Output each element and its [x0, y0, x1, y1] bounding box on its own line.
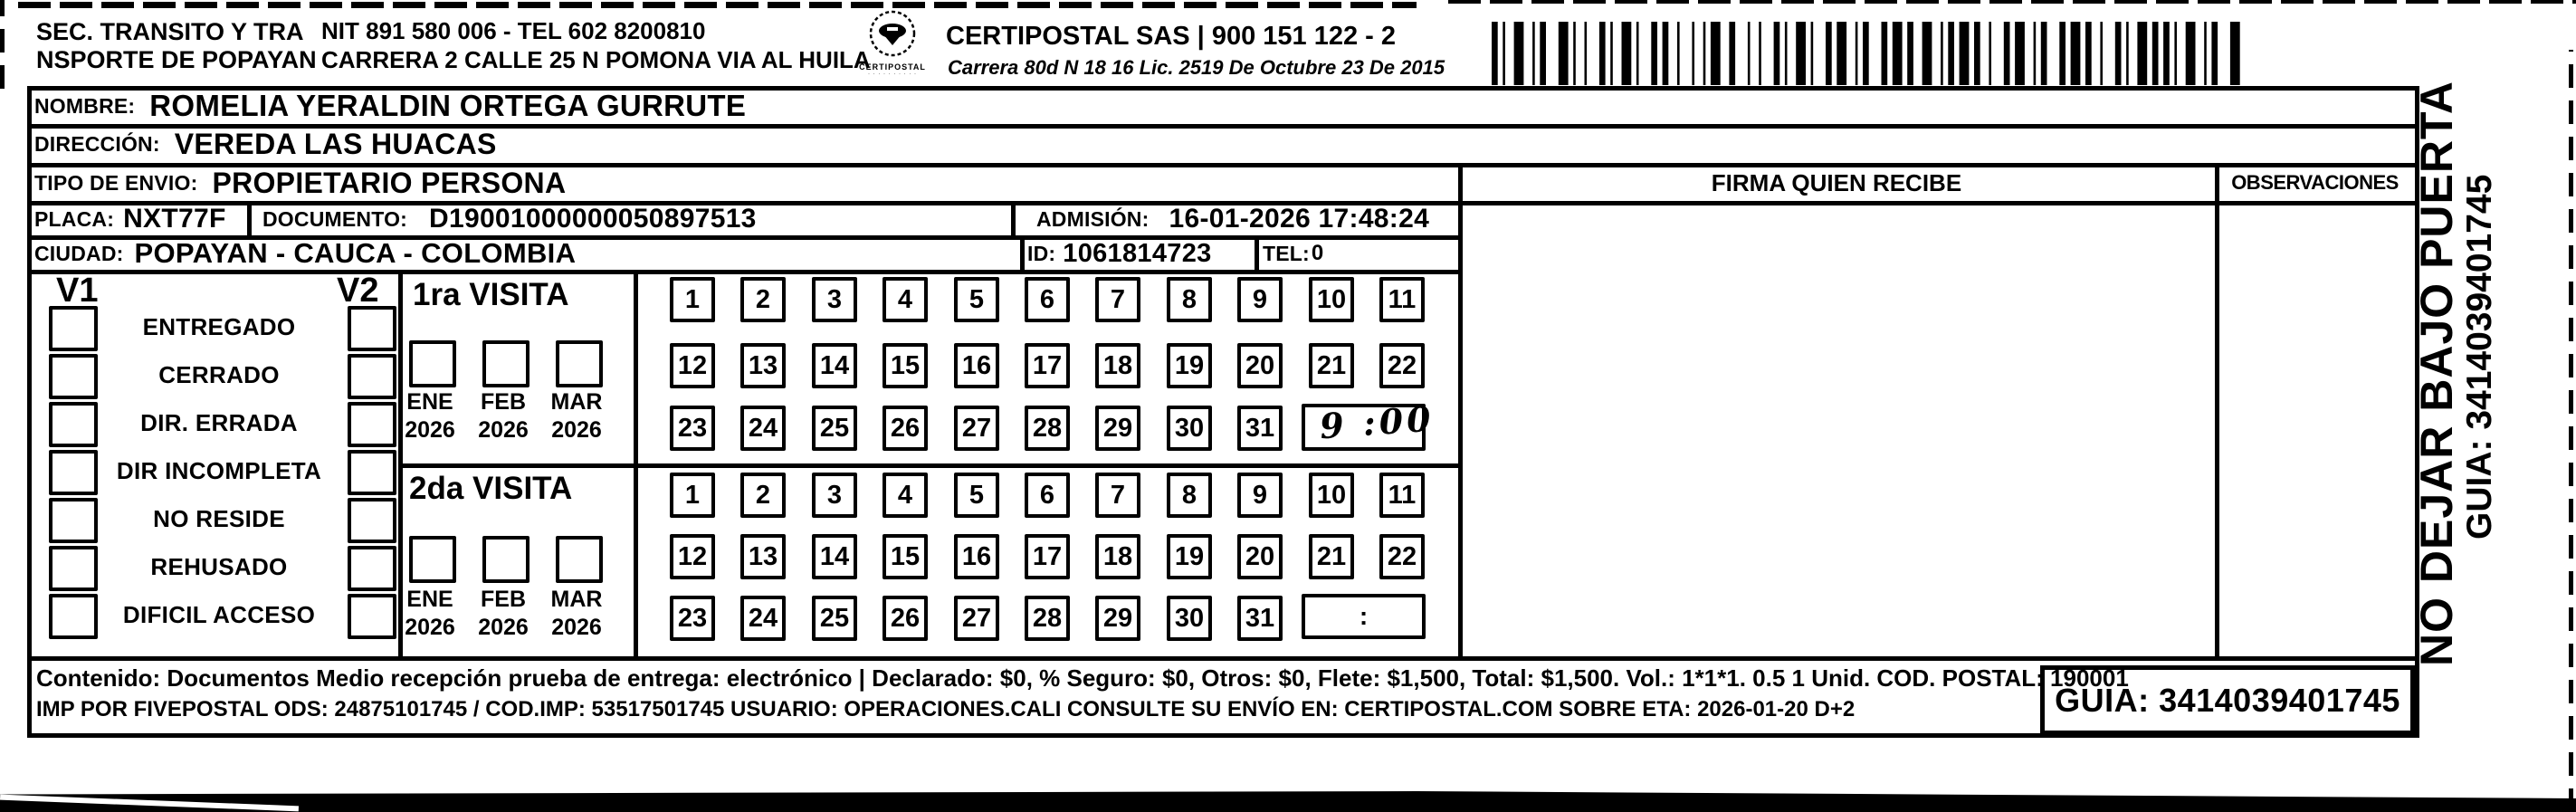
visit1-day-24[interactable]: 24 — [740, 406, 786, 451]
visit2-day-16[interactable]: 16 — [954, 534, 999, 579]
visit1-day-13[interactable]: 13 — [740, 343, 786, 388]
visit2-day-23[interactable]: 23 — [670, 596, 715, 641]
visit1-day-15[interactable]: 15 — [883, 343, 928, 388]
v1-checkbox-dificil-acceso[interactable] — [49, 594, 98, 639]
visit1-year-label: 2026 — [545, 417, 608, 444]
visit1-day-22[interactable]: 22 — [1379, 343, 1425, 388]
visit1-day-12[interactable]: 12 — [670, 343, 715, 388]
field-documento: DOCUMENTO: D19001000000050897513 — [262, 203, 757, 235]
visit1-day-31[interactable]: 31 — [1237, 406, 1283, 451]
admision-label: ADMISIÓN: — [1036, 207, 1149, 232]
visit2-day-31[interactable]: 31 — [1237, 596, 1283, 641]
admision-value: 16-01-2026 17:48:24 — [1169, 204, 1429, 234]
observaciones-header: OBSERVACIONES — [2215, 165, 2415, 201]
sender-contact: NIT 891 580 006 - TEL 602 8200810 CARRER… — [321, 16, 871, 74]
visit1-month-label: ENE — [398, 389, 462, 416]
visit1-day-28[interactable]: 28 — [1025, 406, 1070, 451]
visit2-time-box[interactable]: : — [1302, 594, 1426, 639]
visit2-day-21[interactable]: 21 — [1309, 534, 1354, 579]
visit2-day-26[interactable]: 26 — [883, 596, 928, 641]
visit1-day-27[interactable]: 27 — [954, 406, 999, 451]
logo-caption: CERTIPOSTAL — [849, 62, 936, 72]
visit2-day-28[interactable]: 28 — [1025, 596, 1070, 641]
visit1-month-checkbox-feb[interactable] — [482, 340, 530, 387]
certipostal-logo-icon: CERTIPOSTAL · · · · · · · · · · — [849, 9, 936, 77]
visit1-day-5[interactable]: 5 — [954, 277, 999, 322]
visit2-day-24[interactable]: 24 — [740, 596, 786, 641]
visit1-year-label: 2026 — [472, 417, 535, 444]
visit2-day-15[interactable]: 15 — [883, 534, 928, 579]
scan-artifact — [2569, 50, 2573, 812]
guia-box: GUIA: 3414039401745 — [2040, 665, 2415, 735]
company-subline: Carrera 80d N 18 16 Lic. 2519 De Octubre… — [948, 56, 1445, 80]
visit1-day-18[interactable]: 18 — [1095, 343, 1140, 388]
tipo-envio-label: TIPO DE ENVIO: — [34, 171, 197, 196]
field-placa: PLACA: NXT77F — [34, 203, 226, 235]
visit2-month-label: FEB — [472, 587, 535, 613]
visit2-day-4[interactable]: 4 — [883, 473, 928, 518]
visit2-day-19[interactable]: 19 — [1167, 534, 1212, 579]
visit1-month-checkbox-ene[interactable] — [409, 340, 456, 387]
v1-checkbox-cerrado[interactable] — [49, 354, 98, 399]
visit2-year-label: 2026 — [398, 615, 462, 641]
visit2-day-5[interactable]: 5 — [954, 473, 999, 518]
status-option-label: CERRADO — [92, 361, 346, 389]
visit2-day-6[interactable]: 6 — [1025, 473, 1070, 518]
guia-box-label: GUIA: 3414039401745 — [2055, 682, 2400, 720]
placa-label: PLACA: — [34, 207, 114, 232]
visit1-day-14[interactable]: 14 — [812, 343, 857, 388]
id-value: 1061814723 — [1063, 239, 1211, 269]
field-ciudad: CIUDAD: POPAYAN - CAUCA - COLOMBIA — [34, 237, 576, 270]
visit2-day-7[interactable]: 7 — [1095, 473, 1140, 518]
visit1-day-10[interactable]: 10 — [1309, 277, 1354, 322]
field-nombre: NOMBRE: ROMELIA YERALDIN ORTEGA GURRUTE — [34, 88, 746, 124]
visit2-day-10[interactable]: 10 — [1309, 473, 1354, 518]
grid-line — [1020, 235, 1025, 273]
observaciones-area[interactable] — [2219, 205, 2410, 654]
field-tel: TEL: 0 — [1263, 237, 1324, 270]
visit1-day-3[interactable]: 3 — [812, 277, 857, 322]
tipo-envio-value: PROPIETARIO PERSONA — [212, 167, 566, 200]
ciudad-value: POPAYAN - CAUCA - COLOMBIA — [135, 237, 577, 270]
visit1-day-17[interactable]: 17 — [1025, 343, 1070, 388]
visit1-day-25[interactable]: 25 — [812, 406, 857, 451]
status-option-label: REHUSADO — [92, 553, 346, 581]
grid-line — [634, 270, 638, 661]
firma-signature-area[interactable] — [1463, 205, 2210, 654]
visit1-month-label: FEB — [472, 389, 535, 416]
visit2-time-placeholder: : — [1360, 602, 1368, 631]
visit1-day-26[interactable]: 26 — [883, 406, 928, 451]
nombre-value: ROMELIA YERALDIN ORTEGA GURRUTE — [149, 89, 746, 123]
status-option-label: ENTREGADO — [92, 313, 346, 341]
documento-label: DOCUMENTO: — [262, 207, 407, 232]
visit1-title: 1ra VISITA — [413, 277, 568, 313]
visit1-day-2[interactable]: 2 — [740, 277, 786, 322]
v2-column-label: V2 — [337, 272, 378, 310]
v1-checkbox-entregado[interactable] — [49, 306, 98, 351]
logo-subcaption: · · · · · · · · · · — [849, 72, 936, 77]
visit1-month-label: MAR — [545, 389, 608, 416]
visit2-day-9[interactable]: 9 — [1237, 473, 1283, 518]
grid-line — [247, 201, 252, 239]
visit2-year-label: 2026 — [545, 615, 608, 641]
form-border-left — [27, 86, 32, 738]
v2-checkbox-rehusado[interactable] — [348, 546, 396, 591]
visit1-day-20[interactable]: 20 — [1237, 343, 1283, 388]
visit1-year-label: 2026 — [398, 417, 462, 444]
footer-content-line: Contenido: Documentos Medio recepción pr… — [36, 664, 2129, 693]
v1-checkbox-dir-incompleta[interactable] — [49, 450, 98, 495]
firma-header-label: FIRMA QUIEN RECIBE — [1712, 169, 1961, 197]
barcode — [1492, 22, 2243, 85]
visit1-day-4[interactable]: 4 — [883, 277, 928, 322]
placa-value: NXT77F — [123, 204, 226, 234]
visit2-title: 2da VISITA — [409, 471, 572, 507]
direccion-label: DIRECCIÓN: — [34, 132, 160, 157]
visit1-day-30[interactable]: 30 — [1167, 406, 1212, 451]
visit2-day-22[interactable]: 22 — [1379, 534, 1425, 579]
side-note-no-dejar: NO DEJAR BAJO PUERTA — [2411, 113, 2462, 634]
sender-org-name: SEC. TRANSITO Y TRA NSPORTE DE POPAYAN — [36, 18, 317, 74]
direccion-value: VEREDA LAS HUACAS — [175, 128, 497, 161]
v1-checkbox-no-reside[interactable] — [49, 498, 98, 543]
visit2-day-14[interactable]: 14 — [812, 534, 857, 579]
status-option-label: DIFICIL ACCESO — [92, 601, 346, 629]
scanned-delivery-form: SEC. TRANSITO Y TRA NSPORTE DE POPAYAN N… — [0, 0, 2576, 812]
v1-column-label: V1 — [56, 272, 98, 310]
visit1-day-16[interactable]: 16 — [954, 343, 999, 388]
firma-header: FIRMA QUIEN RECIBE — [1458, 165, 2215, 201]
visit2-month-checkbox-ene[interactable] — [409, 536, 456, 583]
visit1-day-19[interactable]: 19 — [1167, 343, 1212, 388]
scan-artifact — [0, 0, 5, 89]
grid-line — [1011, 201, 1016, 239]
side-note-guia: GUIA: 3414039401745 — [2458, 161, 2502, 552]
visit2-month-label: MAR — [545, 587, 608, 613]
v2-checkbox-no-reside[interactable] — [348, 498, 396, 543]
visit2-day-2[interactable]: 2 — [740, 473, 786, 518]
company-line: CERTIPOSTAL SAS | 900 151 122 - 2 — [946, 22, 1396, 52]
observaciones-header-label: OBSERVACIONES — [2231, 171, 2399, 195]
field-id: ID: 1061814723 — [1027, 237, 1212, 270]
scan-artifact — [1448, 0, 2576, 4]
v1-checkbox-dir-errada[interactable] — [49, 402, 98, 447]
visit2-day-13[interactable]: 13 — [740, 534, 786, 579]
visit1-day-6[interactable]: 6 — [1025, 277, 1070, 322]
visit1-day-8[interactable]: 8 — [1167, 277, 1212, 322]
grid-line — [1255, 235, 1259, 273]
visit1-day-1[interactable]: 1 — [670, 277, 715, 322]
ciudad-label: CIUDAD: — [34, 242, 124, 266]
tel-label: TEL: — [1263, 242, 1310, 266]
visit2-year-label: 2026 — [472, 615, 535, 641]
visit2-month-label: ENE — [398, 587, 462, 613]
status-option-label: DIR INCOMPLETA — [92, 457, 346, 485]
visit1-day-29[interactable]: 29 — [1095, 406, 1140, 451]
grid-line — [398, 463, 1463, 468]
visit1-day-23[interactable]: 23 — [670, 406, 715, 451]
grid-line — [27, 656, 2419, 661]
visit2-day-11[interactable]: 11 — [1379, 473, 1425, 518]
visit2-day-3[interactable]: 3 — [812, 473, 857, 518]
v2-checkbox-dir-errada[interactable] — [348, 402, 396, 447]
visit2-day-17[interactable]: 17 — [1025, 534, 1070, 579]
visit2-month-checkbox-feb[interactable] — [482, 536, 530, 583]
visit2-day-12[interactable]: 12 — [670, 534, 715, 579]
visit2-day-8[interactable]: 8 — [1167, 473, 1212, 518]
id-label: ID: — [1027, 242, 1055, 266]
handwritten-time-visit1: 9 :00 — [1319, 398, 1436, 447]
visit2-day-25[interactable]: 25 — [812, 596, 857, 641]
v1-checkbox-rehusado[interactable] — [49, 546, 98, 591]
nombre-label: NOMBRE: — [34, 94, 135, 119]
scan-artifact-bottom-band — [0, 789, 2576, 812]
visit1-day-21[interactable]: 21 — [1309, 343, 1354, 388]
visit2-month-checkbox-mar[interactable] — [556, 536, 603, 583]
documento-value: D19001000000050897513 — [429, 204, 757, 234]
visit2-day-29[interactable]: 29 — [1095, 596, 1140, 641]
visit2-day-30[interactable]: 30 — [1167, 596, 1212, 641]
visit1-month-checkbox-mar[interactable] — [556, 340, 603, 387]
v2-checkbox-dificil-acceso[interactable] — [348, 594, 396, 639]
footer-import-line: IMP POR FIVEPOSTAL ODS: 24875101745 / CO… — [36, 697, 1855, 722]
field-direccion: DIRECCIÓN: VEREDA LAS HUACAS — [34, 126, 497, 163]
field-admision: ADMISIÓN: 16-01-2026 17:48:24 — [1036, 203, 1429, 235]
grid-line — [27, 270, 1463, 274]
v2-checkbox-cerrado[interactable] — [348, 354, 396, 399]
field-tipo-envio: TIPO DE ENVIO: PROPIETARIO PERSONA — [34, 165, 566, 201]
visit2-day-18[interactable]: 18 — [1095, 534, 1140, 579]
visit1-day-9[interactable]: 9 — [1237, 277, 1283, 322]
visit1-day-7[interactable]: 7 — [1095, 277, 1140, 322]
v2-checkbox-entregado[interactable] — [348, 306, 396, 351]
status-option-label: DIR. ERRADA — [92, 409, 346, 437]
visit1-day-11[interactable]: 11 — [1379, 277, 1425, 322]
tel-value: 0 — [1312, 241, 1324, 266]
scan-artifact — [18, 2, 1417, 8]
v2-checkbox-dir-incompleta[interactable] — [348, 450, 396, 495]
visit2-day-1[interactable]: 1 — [670, 473, 715, 518]
visit2-day-20[interactable]: 20 — [1237, 534, 1283, 579]
status-option-label: NO RESIDE — [92, 505, 346, 533]
visit2-day-27[interactable]: 27 — [954, 596, 999, 641]
